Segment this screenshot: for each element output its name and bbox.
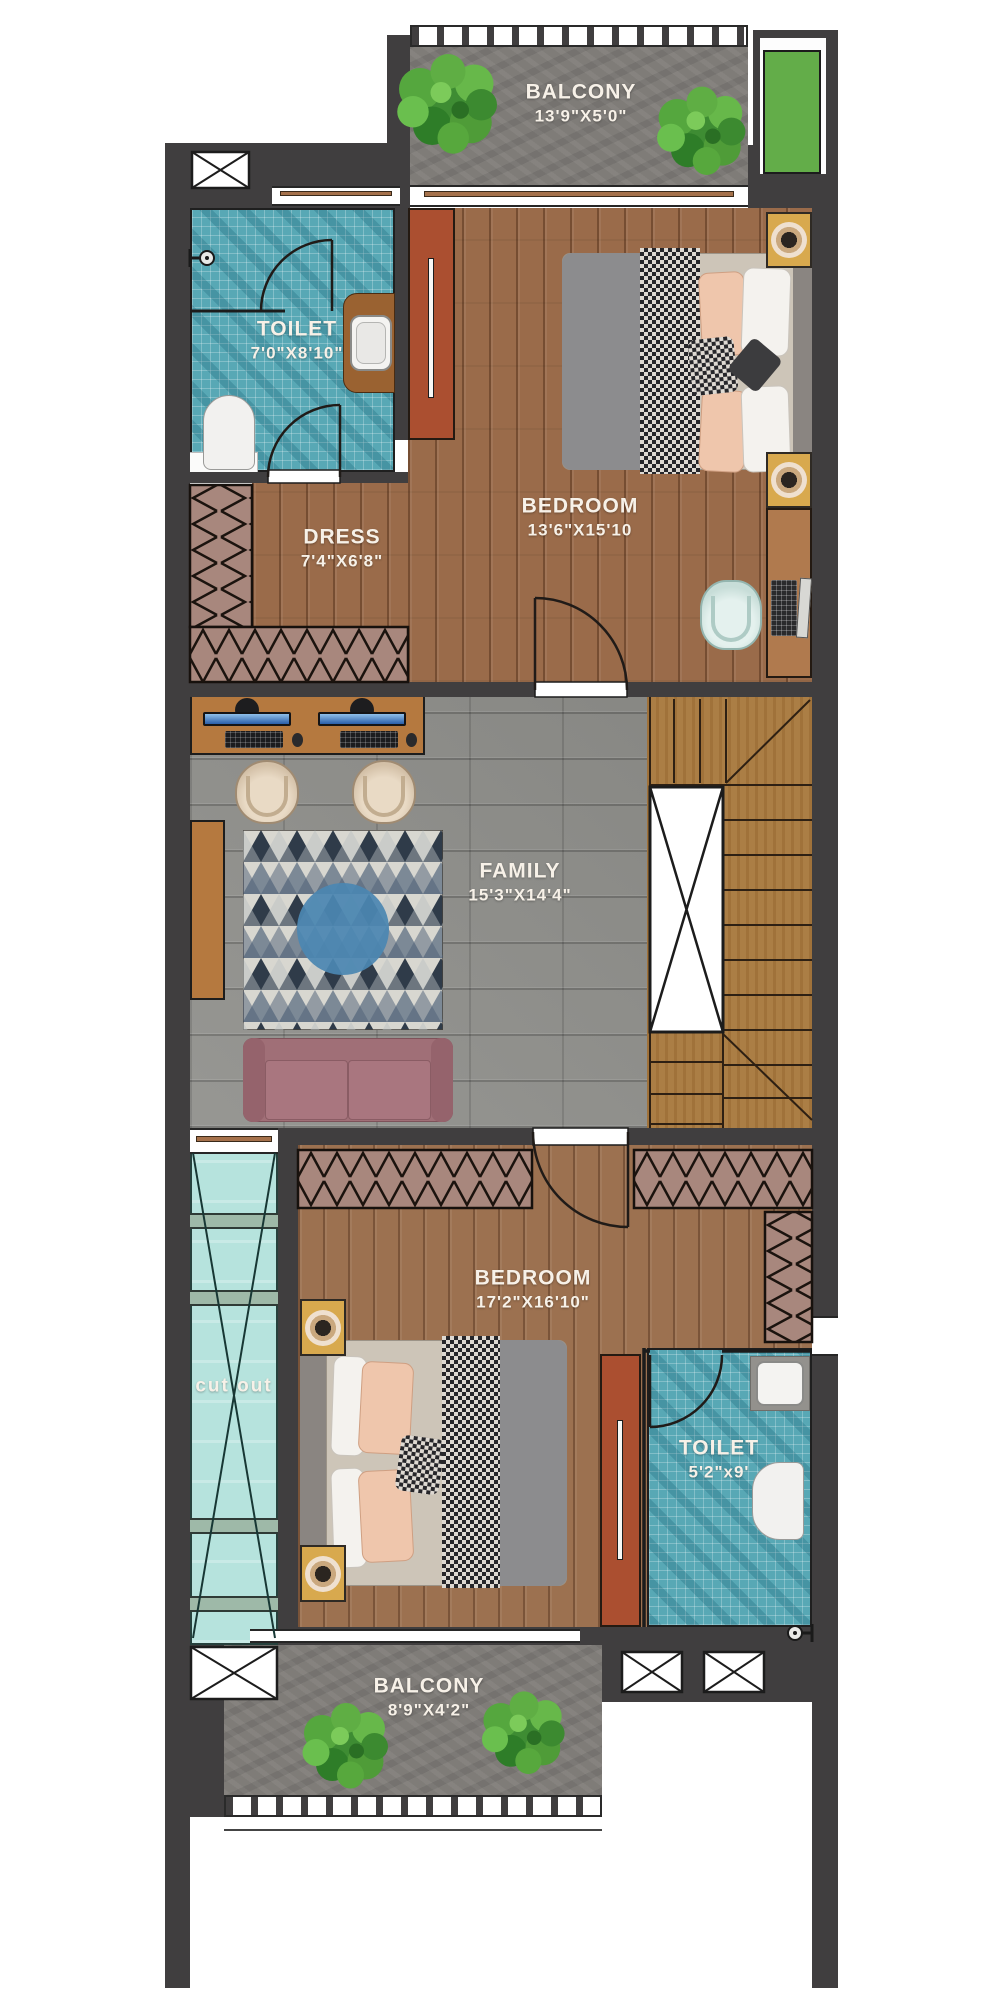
- room-dims: 13'6"X15'10: [522, 520, 639, 542]
- keyboard-icon: [340, 731, 398, 748]
- wall: [395, 208, 408, 440]
- wardrobe-slider: [428, 258, 434, 398]
- room-dims: 8'9"X4'2": [374, 1700, 485, 1722]
- floor-plan: BALCONY 13'9"X5'0" TOILET 7'0"X8'10" BED…: [0, 0, 1000, 2000]
- monitor-icon: [203, 712, 291, 726]
- dress-floor: [252, 483, 408, 682]
- window-toilet-top: [272, 186, 400, 206]
- room-dims: 13'9"X5'0": [526, 106, 637, 128]
- balcony-bottom-railing: [224, 1795, 602, 1817]
- sink-basin: [356, 322, 386, 364]
- room-label-bedroom-top: BEDROOM 13'6"X15'10: [522, 492, 639, 541]
- room-label-family: FAMILY 15'3"X14'4": [468, 857, 571, 906]
- room-label-cutout: cut out: [195, 1375, 272, 1400]
- room-dims: 5'2"x9': [679, 1462, 759, 1484]
- lamp-icon: [771, 462, 807, 498]
- balcony-top-railing: [410, 25, 748, 47]
- laptop-icon: [771, 580, 797, 636]
- cabinet: [190, 820, 225, 1000]
- cutout-mullion: [190, 1518, 278, 1534]
- mouse-icon: [406, 733, 417, 747]
- wall-right: [812, 180, 838, 1988]
- bed-blanket: [562, 253, 642, 470]
- room-name: DRESS: [301, 523, 383, 550]
- room-name: BEDROOM: [475, 1264, 592, 1291]
- planter-box: [763, 50, 821, 174]
- wall: [165, 682, 535, 697]
- wc-icon: [203, 395, 255, 470]
- wall: [628, 1128, 838, 1145]
- room-name: FAMILY: [468, 857, 571, 884]
- wall: [602, 1645, 812, 1702]
- bed-throw: [442, 1336, 500, 1588]
- room-label-toilet-top: TOILET 7'0"X8'10": [251, 315, 344, 364]
- window-sill: [280, 191, 392, 196]
- room-name: cut out: [195, 1375, 272, 1400]
- wall: [387, 35, 410, 185]
- stairs-floor: [647, 697, 812, 1128]
- wall: [340, 472, 408, 483]
- room-dims: 7'4"X6'8": [301, 551, 383, 573]
- mouse-icon: [292, 733, 303, 747]
- window-sill: [196, 1136, 272, 1142]
- room-dims: 17'2"X16'10": [475, 1292, 592, 1314]
- room-label-toilet-bottom: TOILET 5'2"x9': [679, 1434, 759, 1483]
- bed-headboard: [793, 250, 812, 472]
- lamp-icon: [305, 1556, 341, 1592]
- room-name: BALCONY: [526, 78, 637, 105]
- sofa-armrest: [243, 1038, 265, 1122]
- room-label-balcony-top: BALCONY 13'9"X5'0": [526, 78, 637, 127]
- chair: [700, 580, 762, 650]
- lamp-icon: [771, 222, 807, 258]
- wall: [165, 472, 268, 483]
- room-name: TOILET: [251, 315, 344, 342]
- bed-headboard: [300, 1348, 326, 1578]
- sofa-seat: [348, 1060, 431, 1120]
- pillow-accent: [394, 1434, 445, 1496]
- window-bedroom-bottom: [250, 1629, 580, 1643]
- right-wall-window: [812, 1316, 838, 1356]
- balcony-bottom-sill: [224, 1817, 602, 1831]
- sofa-seat: [265, 1060, 348, 1120]
- room-name: BALCONY: [374, 1672, 485, 1699]
- monitor-icon: [318, 712, 406, 726]
- room-dims: 7'0"X8'10": [251, 343, 344, 365]
- wall-left: [165, 143, 190, 1988]
- wall: [627, 682, 838, 697]
- sofa-armrest: [431, 1038, 453, 1122]
- cutout-mullion: [190, 1596, 278, 1612]
- lamp-icon: [305, 1310, 341, 1346]
- sink-icon: [756, 1361, 804, 1406]
- wall: [190, 1645, 224, 1817]
- cutout-mullion: [190, 1213, 278, 1229]
- chair: [352, 760, 416, 824]
- chair: [235, 760, 299, 824]
- room-dims: 15'3"X14'4": [468, 885, 571, 907]
- keyboard-icon: [225, 731, 283, 748]
- window-sill: [424, 191, 734, 197]
- cutout-mullion: [190, 1290, 278, 1306]
- wardrobe-slider: [617, 1420, 623, 1560]
- wc-icon: [752, 1462, 804, 1540]
- room-name: TOILET: [679, 1434, 759, 1461]
- bed-blanket: [500, 1340, 567, 1586]
- wall: [278, 1145, 298, 1627]
- room-label-dress: DRESS 7'4"X6'8": [301, 523, 383, 572]
- room-label-balcony-bottom: BALCONY 8'9"X4'2": [374, 1672, 485, 1721]
- room-name: BEDROOM: [522, 492, 639, 519]
- room-label-bedroom-bottom: BEDROOM 17'2"X16'10": [475, 1264, 592, 1313]
